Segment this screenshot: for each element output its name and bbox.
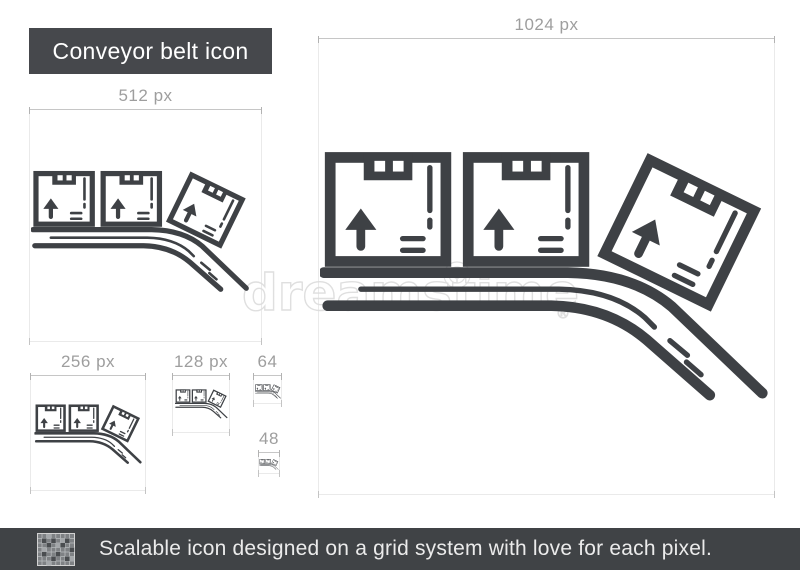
size-label-64: 64 bbox=[258, 352, 278, 372]
corner-tick bbox=[281, 400, 282, 407]
title-text: Conveyor belt icon bbox=[53, 38, 249, 65]
conveyor-belt-icon-1024 bbox=[320, 150, 772, 405]
conveyor-belt-icon-256 bbox=[34, 404, 143, 465]
corner-tick bbox=[261, 338, 262, 345]
corner-tick bbox=[279, 470, 280, 477]
footer-caption: Scalable icon designed on a grid system … bbox=[99, 537, 712, 561]
footer-bar: Scalable icon designed on a grid system … bbox=[0, 528, 800, 570]
corner-tick bbox=[258, 470, 259, 477]
corner-tick bbox=[229, 429, 230, 436]
corner-tick bbox=[318, 491, 319, 498]
stock-image-canvas: dreamstime ® Conveyor belt icon 1024 px … bbox=[0, 0, 800, 576]
pixel-grid-icon bbox=[37, 533, 75, 566]
conveyor-belt-icon-64 bbox=[255, 384, 281, 399]
size-label-512: 512 px bbox=[118, 86, 172, 106]
size-label-256: 256 px bbox=[61, 352, 115, 372]
conveyor-belt-icon-128 bbox=[175, 389, 228, 419]
corner-tick bbox=[172, 429, 173, 436]
corner-tick bbox=[774, 491, 775, 498]
title-badge: Conveyor belt icon bbox=[29, 28, 272, 74]
size-label-48: 48 bbox=[259, 429, 279, 449]
conveyor-belt-icon-512 bbox=[31, 170, 251, 294]
corner-tick bbox=[253, 400, 254, 407]
corner-tick bbox=[29, 338, 30, 345]
size-label-128: 128 px bbox=[174, 352, 228, 372]
corner-tick bbox=[145, 487, 146, 494]
corner-tick bbox=[30, 487, 31, 494]
conveyor-belt-icon-48 bbox=[259, 459, 279, 470]
size-label-1024: 1024 px bbox=[515, 15, 579, 35]
